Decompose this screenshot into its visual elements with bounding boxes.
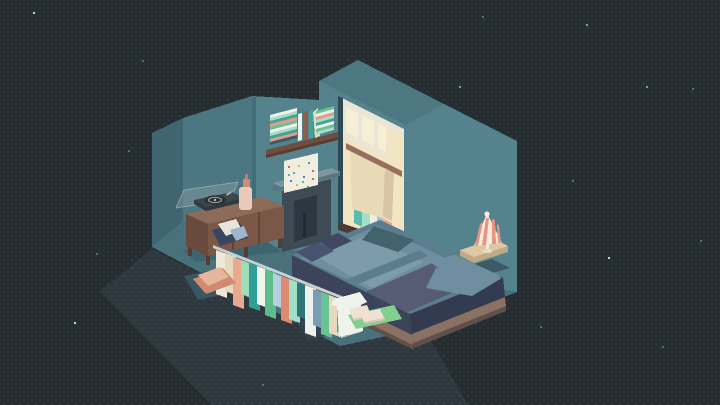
bottle-body [239,187,252,210]
record-spindle [214,199,216,201]
art-speckle [302,181,304,183]
book-vertical [303,111,308,140]
art-speckle [312,170,314,172]
star [128,150,130,152]
art-speckle [303,176,305,178]
cabinet-leg [278,238,282,248]
star [586,24,588,26]
star [482,16,484,18]
pixel-art-scene [0,0,720,405]
star [662,346,664,348]
star [700,240,702,242]
fireplace-grate [303,213,306,237]
art-speckle [288,174,290,176]
star [540,326,542,328]
star [572,180,574,182]
art-speckle [288,166,290,168]
art-speckle [312,178,314,180]
cabinet-leg [244,247,248,257]
book-vertical [298,113,302,141]
star [142,60,144,62]
star [692,88,694,90]
closet-edge-shadow [338,96,343,226]
art-speckle [296,184,298,186]
star [74,322,76,324]
art-speckle [290,180,292,182]
window-bar [358,112,362,140]
cabinet-leg [206,255,210,265]
star [646,86,648,88]
lamp-base [483,249,493,253]
star [608,257,610,259]
art-speckle [308,162,310,164]
art-speckle [298,165,300,167]
art-speckle [307,186,309,188]
star [96,253,98,255]
art-speckle [293,172,295,174]
lamp-shade-tip [485,212,490,217]
window-bar [374,120,378,148]
book-vertical [309,110,313,139]
cabinet-door-line [258,212,260,244]
star [459,86,461,88]
star [33,12,35,14]
